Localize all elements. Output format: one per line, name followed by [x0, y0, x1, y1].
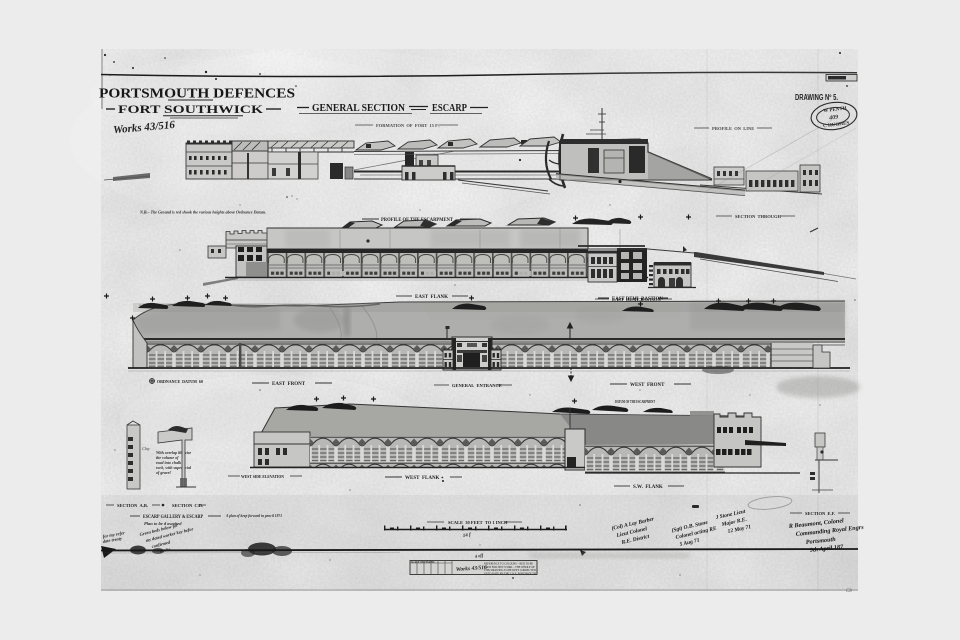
svg-text:ORDNANCE DATUM 60: ORDNANCE DATUM 60 — [157, 379, 203, 384]
svg-text:SECTION E.F.: SECTION E.F. — [805, 511, 835, 516]
svg-text:EAST FRONT: EAST FRONT — [272, 382, 306, 387]
svg-text:ESCARP: ESCARP — [432, 103, 467, 114]
svg-text:SECTION THROUGH: SECTION THROUGH — [735, 214, 782, 219]
svg-text:WEST SIDE ELEVATION: WEST SIDE ELEVATION — [241, 474, 285, 479]
svg-text:GENERAL SECTION: GENERAL SECTION — [312, 103, 406, 114]
svg-text:GENERAL ENTRANCE: GENERAL ENTRANCE — [452, 383, 502, 388]
svg-text:UP TO DATE BY THE C.R.E. PORTS: UP TO DATE BY THE C.R.E. PORTSMOUTH — [484, 572, 536, 575]
svg-text:WEST FLANK ⋆: WEST FLANK ⋆ — [405, 476, 444, 481]
svg-text:Cb: Cb — [846, 589, 852, 594]
svg-text:DRAWING Nº 5.: DRAWING Nº 5. — [795, 93, 838, 102]
svg-text:SECTION C.D.: SECTION C.D. — [172, 503, 203, 508]
svg-text:of gravel: of gravel — [156, 470, 171, 475]
svg-text:SCALE OF CHAINS: SCALE OF CHAINS — [411, 561, 435, 564]
svg-text:A plan of keep forward in penc: A plan of keep forward in pencil 1871 — [225, 514, 282, 518]
svg-text:WEST FRONT: WEST FRONT — [630, 383, 665, 388]
svg-text:PROFILE ON LINE: PROFILE ON LINE — [712, 126, 754, 131]
svg-text:SECTION A.B.: SECTION A.B. — [117, 503, 148, 508]
svg-text:N.B.– The Ground is red shook: N.B.– The Ground is red shook the variou… — [139, 210, 266, 215]
svg-text:S.W. FLANK: S.W. FLANK — [633, 485, 663, 490]
svg-text:SCALE 30 FEET TO 1 INCH: SCALE 30 FEET TO 1 INCH — [448, 520, 508, 525]
svg-text:DATUM OF THE ESCARPMENT: DATUM OF THE ESCARPMENT — [615, 399, 655, 404]
svg-text:ESCARP GALLERY & ESCARP: ESCARP GALLERY & ESCARP — [143, 515, 203, 520]
svg-text:EAST FLANK: EAST FLANK — [415, 295, 448, 300]
svg-text:FORMATION OF FORT 15 F†: FORMATION OF FORT 15 F† — [376, 123, 441, 128]
svg-text:409: 409 — [828, 115, 839, 122]
svg-text:PORTSMOUTH DEFENCES: PORTSMOUTH DEFENCES — [99, 86, 295, 101]
svg-text:FORT SOUTHWICK: FORT SOUTHWICK — [118, 104, 263, 116]
svg-text:Clay: Clay — [142, 446, 150, 451]
